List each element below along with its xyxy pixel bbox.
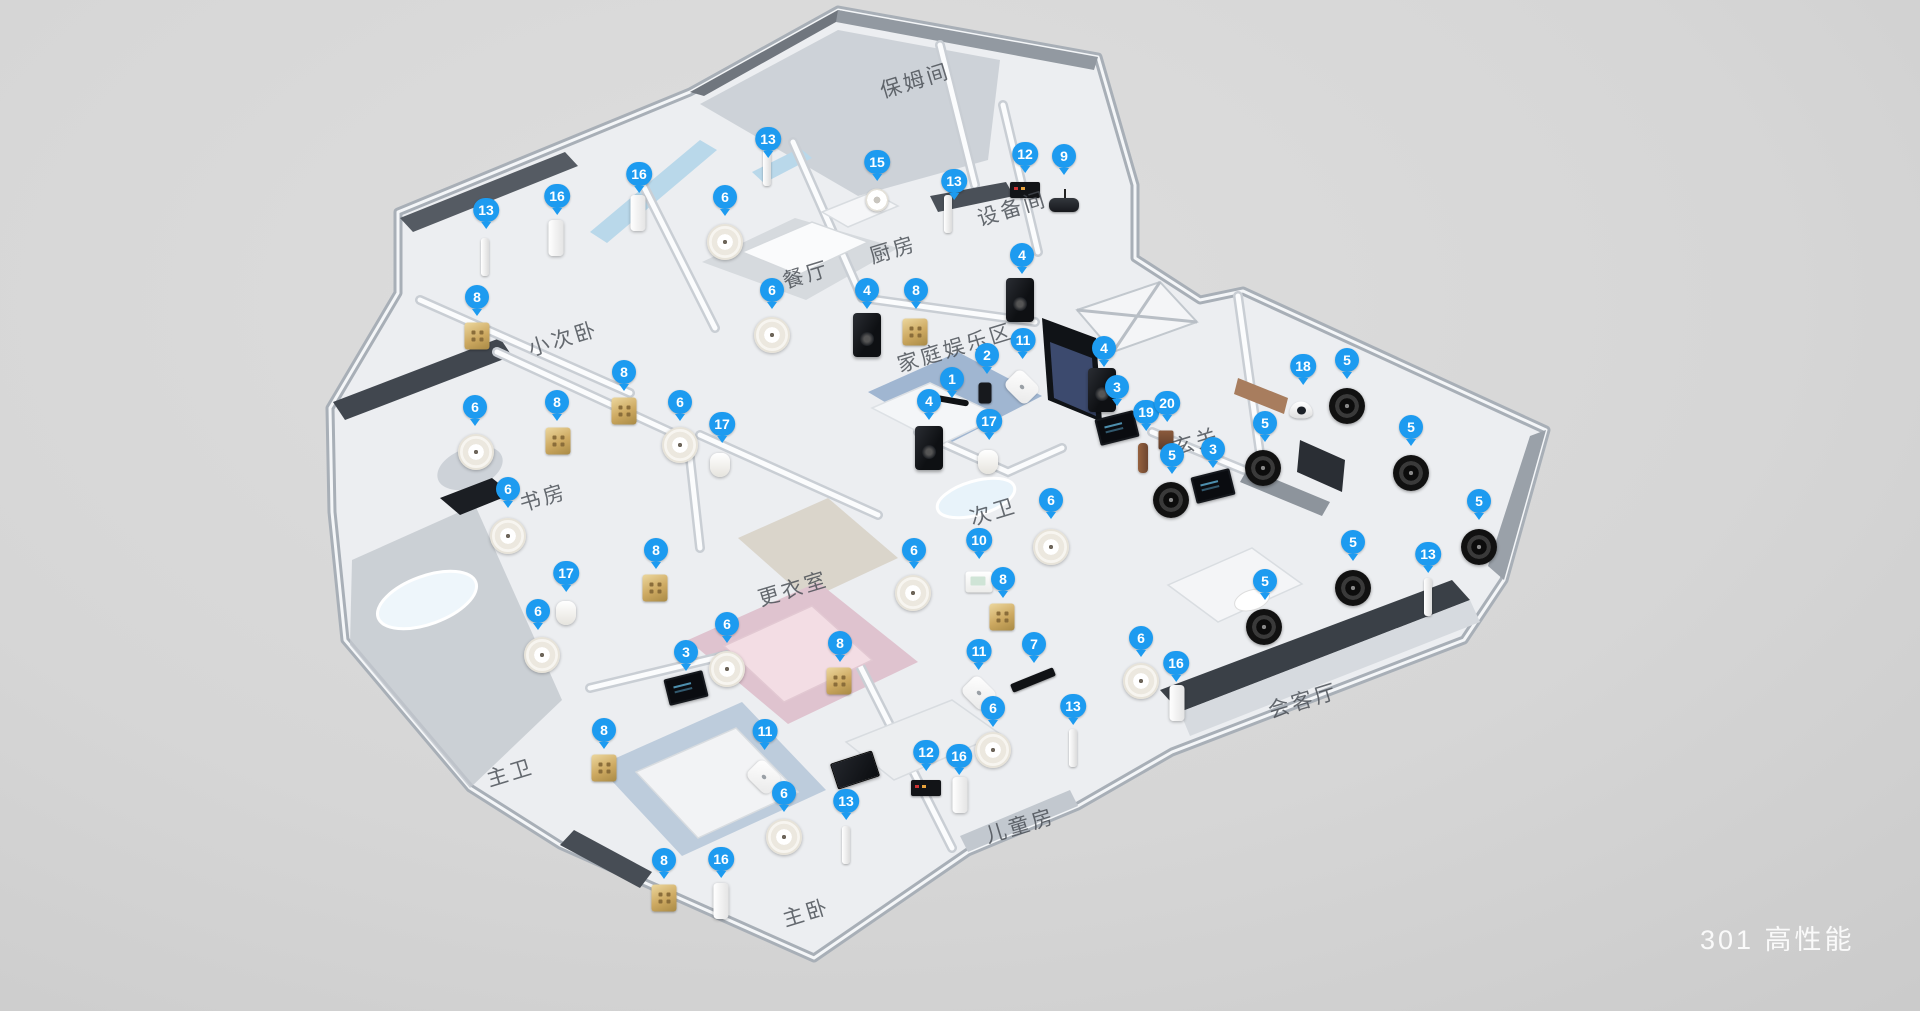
router-icon — [1049, 198, 1079, 212]
floor-caption: 301 高性能 — [1700, 918, 1855, 957]
device-marker-20[interactable]: 20 — [1154, 391, 1180, 415]
device-marker-5[interactable]: 5 — [1160, 443, 1184, 467]
device-marker-13[interactable]: 13 — [1060, 694, 1086, 718]
device-marker-4[interactable]: 4 — [1010, 243, 1034, 267]
motion-sensor-icon — [710, 453, 730, 477]
smart-lock-icon — [1138, 443, 1148, 473]
device-marker-3[interactable]: 3 — [1105, 375, 1129, 399]
device-marker-6[interactable]: 6 — [981, 696, 1005, 720]
thermostat-icon — [966, 572, 993, 593]
ceiling-speaker-black-icon — [1335, 570, 1371, 606]
device-marker-4[interactable]: 4 — [1092, 336, 1116, 360]
device-marker-16[interactable]: 16 — [946, 744, 972, 768]
device-marker-2[interactable]: 2 — [975, 343, 999, 367]
device-marker-11[interactable]: 11 — [1011, 328, 1036, 352]
ceiling-speaker-white-icon — [707, 224, 743, 260]
floor-speaker-icon — [1006, 278, 1034, 322]
ceiling-speaker-white-icon — [895, 575, 931, 611]
device-marker-6[interactable]: 6 — [760, 278, 784, 302]
ceiling-speaker-white-icon — [662, 427, 698, 463]
ceiling-speaker-white-icon — [458, 434, 494, 470]
ceiling-speaker-black-icon — [1246, 609, 1282, 645]
ceiling-speaker-white-icon — [754, 317, 790, 353]
device-marker-5[interactable]: 5 — [1253, 569, 1277, 593]
device-marker-9[interactable]: 9 — [1052, 144, 1076, 168]
device-marker-3[interactable]: 3 — [1201, 437, 1225, 461]
scene-keypad-icon — [827, 668, 852, 695]
floor-speaker-icon — [915, 426, 943, 470]
scene-keypad-icon — [592, 755, 617, 782]
device-marker-5[interactable]: 5 — [1253, 411, 1277, 435]
device-marker-6[interactable]: 6 — [715, 612, 739, 636]
curtain-controller-icon — [842, 826, 850, 864]
device-marker-5[interactable]: 5 — [1341, 530, 1365, 554]
device-marker-7[interactable]: 7 — [1022, 632, 1046, 656]
device-marker-13[interactable]: 13 — [1415, 542, 1441, 566]
device-marker-16[interactable]: 16 — [626, 162, 652, 186]
motion-sensor-icon — [978, 450, 998, 474]
device-marker-5[interactable]: 5 — [1467, 489, 1491, 513]
device-marker-8[interactable]: 8 — [652, 848, 676, 872]
device-marker-5[interactable]: 5 — [1399, 415, 1423, 439]
motion-sensor-icon — [556, 601, 576, 625]
device-marker-1[interactable]: 1 — [940, 367, 964, 391]
ceiling-speaker-white-icon — [524, 637, 560, 673]
device-marker-17[interactable]: 17 — [709, 412, 735, 436]
ceiling-speaker-white-icon — [709, 651, 745, 687]
device-marker-6[interactable]: 6 — [1039, 488, 1063, 512]
device-marker-6[interactable]: 6 — [772, 781, 796, 805]
device-marker-12[interactable]: 12 — [913, 740, 939, 764]
ceiling-speaker-white-icon — [490, 518, 526, 554]
device-marker-11[interactable]: 11 — [967, 639, 992, 663]
device-marker-8[interactable]: 8 — [545, 390, 569, 414]
curtain-motor-icon — [1170, 685, 1185, 721]
ceiling-speaker-white-icon — [1123, 663, 1159, 699]
device-marker-5[interactable]: 5 — [1335, 348, 1359, 372]
device-marker-16[interactable]: 16 — [1163, 651, 1189, 675]
floor-speaker-icon — [853, 313, 881, 357]
dome-camera-icon — [1290, 402, 1313, 419]
smoke-detector-icon — [866, 189, 889, 212]
camera-icon — [979, 383, 992, 404]
curtain-motor-icon — [631, 195, 646, 231]
curtain-motor-icon — [549, 220, 564, 256]
device-marker-6[interactable]: 6 — [1129, 626, 1153, 650]
scene-keypad-icon — [612, 398, 637, 425]
apartment-floorplan-render — [0, 0, 1920, 1011]
curtain-motor-icon — [953, 777, 968, 813]
device-marker-6[interactable]: 6 — [668, 390, 692, 414]
device-marker-8[interactable]: 8 — [592, 718, 616, 742]
device-marker-13[interactable]: 13 — [473, 198, 499, 222]
ceiling-speaker-black-icon — [1245, 450, 1281, 486]
device-marker-6[interactable]: 6 — [526, 599, 550, 623]
scene-keypad-icon — [546, 428, 571, 455]
ceiling-speaker-white-icon — [1033, 529, 1069, 565]
curtain-motor-icon — [714, 883, 729, 919]
device-marker-16[interactable]: 16 — [708, 847, 734, 871]
device-marker-16[interactable]: 16 — [544, 184, 570, 208]
av-box-icon — [911, 780, 941, 796]
device-marker-6[interactable]: 6 — [902, 538, 926, 562]
scene-keypad-icon — [465, 323, 490, 350]
device-marker-6[interactable]: 6 — [463, 395, 487, 419]
ceiling-speaker-black-icon — [1153, 482, 1189, 518]
ceiling-speaker-white-icon — [975, 732, 1011, 768]
curtain-controller-icon — [944, 195, 952, 233]
device-marker-11[interactable]: 11 — [753, 719, 778, 743]
curtain-controller-icon — [1069, 729, 1077, 767]
device-marker-17[interactable]: 17 — [553, 561, 579, 585]
device-marker-8[interactable]: 8 — [828, 631, 852, 655]
curtain-controller-icon — [481, 238, 489, 276]
device-marker-4[interactable]: 4 — [855, 278, 879, 302]
device-marker-6[interactable]: 6 — [496, 477, 520, 501]
device-marker-8[interactable]: 8 — [465, 285, 489, 309]
device-marker-8[interactable]: 8 — [612, 360, 636, 384]
scene-keypad-icon — [652, 885, 677, 912]
ceiling-speaker-white-icon — [766, 819, 802, 855]
device-marker-10[interactable]: 10 — [966, 528, 992, 552]
device-marker-6[interactable]: 6 — [713, 185, 737, 209]
device-marker-13[interactable]: 13 — [941, 169, 967, 193]
device-marker-4[interactable]: 4 — [917, 389, 941, 413]
floorplan-scene: 1316161361513129648488866176817663112141… — [0, 0, 1920, 1011]
ceiling-speaker-black-icon — [1329, 388, 1365, 424]
device-marker-8[interactable]: 8 — [644, 538, 668, 562]
ceiling-speaker-black-icon — [1461, 529, 1497, 565]
device-marker-8[interactable]: 8 — [904, 278, 928, 302]
device-marker-12[interactable]: 12 — [1012, 142, 1038, 166]
device-marker-8[interactable]: 8 — [991, 567, 1015, 591]
curtain-controller-icon — [1424, 578, 1432, 616]
ceiling-speaker-black-icon — [1393, 455, 1429, 491]
device-marker-3[interactable]: 3 — [674, 640, 698, 664]
device-marker-15[interactable]: 15 — [864, 150, 890, 174]
device-marker-18[interactable]: 18 — [1290, 354, 1316, 378]
device-marker-13[interactable]: 13 — [755, 127, 781, 151]
scene-keypad-icon — [643, 575, 668, 602]
device-marker-17[interactable]: 17 — [976, 409, 1002, 433]
scene-keypad-icon — [990, 604, 1015, 631]
device-marker-13[interactable]: 13 — [833, 789, 859, 813]
